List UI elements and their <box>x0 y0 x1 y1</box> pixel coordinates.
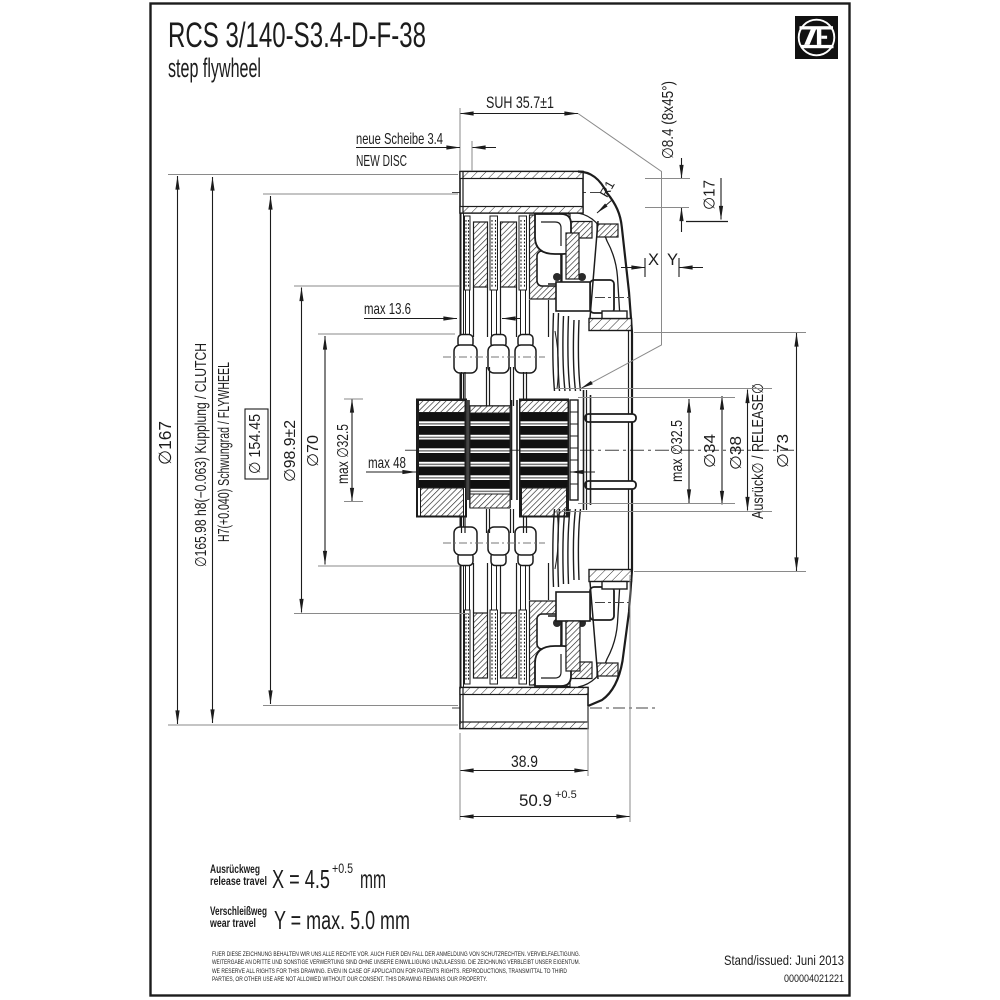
svg-text:000004021221: 000004021221 <box>784 973 844 985</box>
svg-text:wear travel: wear travel <box>209 918 256 930</box>
svg-text:WEITERGABE AN DRITTE UND SONST: WEITERGABE AN DRITTE UND SONSTIGE VERWER… <box>212 959 580 966</box>
svg-text:∅8.4 (8x45°): ∅8.4 (8x45°) <box>660 81 677 159</box>
svg-text:+0.5: +0.5 <box>332 861 353 876</box>
svg-text:Verschleißweg: Verschleißweg <box>210 906 267 918</box>
svg-text:∅17: ∅17 <box>702 180 719 210</box>
svg-text:max ∅32.5: max ∅32.5 <box>335 424 352 484</box>
svg-text:SUH 35.7±1: SUH 35.7±1 <box>486 94 554 112</box>
svg-text:∅ 154.45: ∅ 154.45 <box>247 414 264 474</box>
svg-text:mm: mm <box>360 864 386 894</box>
svg-text:∅73: ∅73 <box>775 434 792 468</box>
svg-text:X: X <box>648 251 659 269</box>
svg-text:Stand/issued: Juni 2013: Stand/issued: Juni 2013 <box>724 952 844 968</box>
svg-text:∅165.98 h8(−0.063) Kupplung /: ∅165.98 h8(−0.063) Kupplung / CLUTCH <box>193 343 210 567</box>
svg-text:neue Scheibe 3.4: neue Scheibe 3.4 <box>356 131 443 148</box>
svg-text:FUER DIESE ZEICHNUNG BEHALTEN: FUER DIESE ZEICHNUNG BEHALTEN WIR UNS AL… <box>212 951 580 958</box>
svg-text:∅167: ∅167 <box>155 421 175 465</box>
svg-text:max 48: max 48 <box>368 455 406 472</box>
svg-text:NEW DISC: NEW DISC <box>356 153 407 170</box>
svg-text:max 13.6: max 13.6 <box>364 301 411 318</box>
svg-text:+0.5: +0.5 <box>555 789 577 801</box>
svg-text:X = 4.5: X = 4.5 <box>272 864 330 894</box>
svg-text:∅70: ∅70 <box>305 435 322 467</box>
svg-text:Ausrückweg: Ausrückweg <box>210 864 260 876</box>
svg-text:50.9: 50.9 <box>519 792 552 810</box>
svg-text:release travel: release travel <box>210 876 267 888</box>
svg-text:Y = max. 5.0 mm: Y = max. 5.0 mm <box>274 905 410 935</box>
svg-text:H7(+0.040) Schwungrad / FLYWHE: H7(+0.040) Schwungrad / FLYWHEEL <box>216 362 233 542</box>
svg-text:∅38: ∅38 <box>728 436 745 470</box>
svg-text:Y: Y <box>667 251 678 269</box>
svg-text:∅98.9±2: ∅98.9±2 <box>282 420 299 482</box>
svg-text:step flywheel: step flywheel <box>168 53 261 83</box>
svg-text:max ∅32.5: max ∅32.5 <box>669 420 686 482</box>
svg-text:RCS 3/140-S3.4-D-F-38: RCS 3/140-S3.4-D-F-38 <box>168 16 426 55</box>
svg-text:38.9: 38.9 <box>511 753 538 771</box>
svg-text:PARTIES, OR OTHER USE ARE NOT: PARTIES, OR OTHER USE ARE NOT ALLOWED WI… <box>212 976 487 983</box>
svg-text:WE RESERVE ALL RIGHTS FOR THIS: WE RESERVE ALL RIGHTS FOR THIS DRAWING. … <box>212 968 567 975</box>
svg-text:Ausrück∅ / RELEASE∅: Ausrück∅ / RELEASE∅ <box>750 383 767 519</box>
svg-text:∅34: ∅34 <box>702 434 719 468</box>
